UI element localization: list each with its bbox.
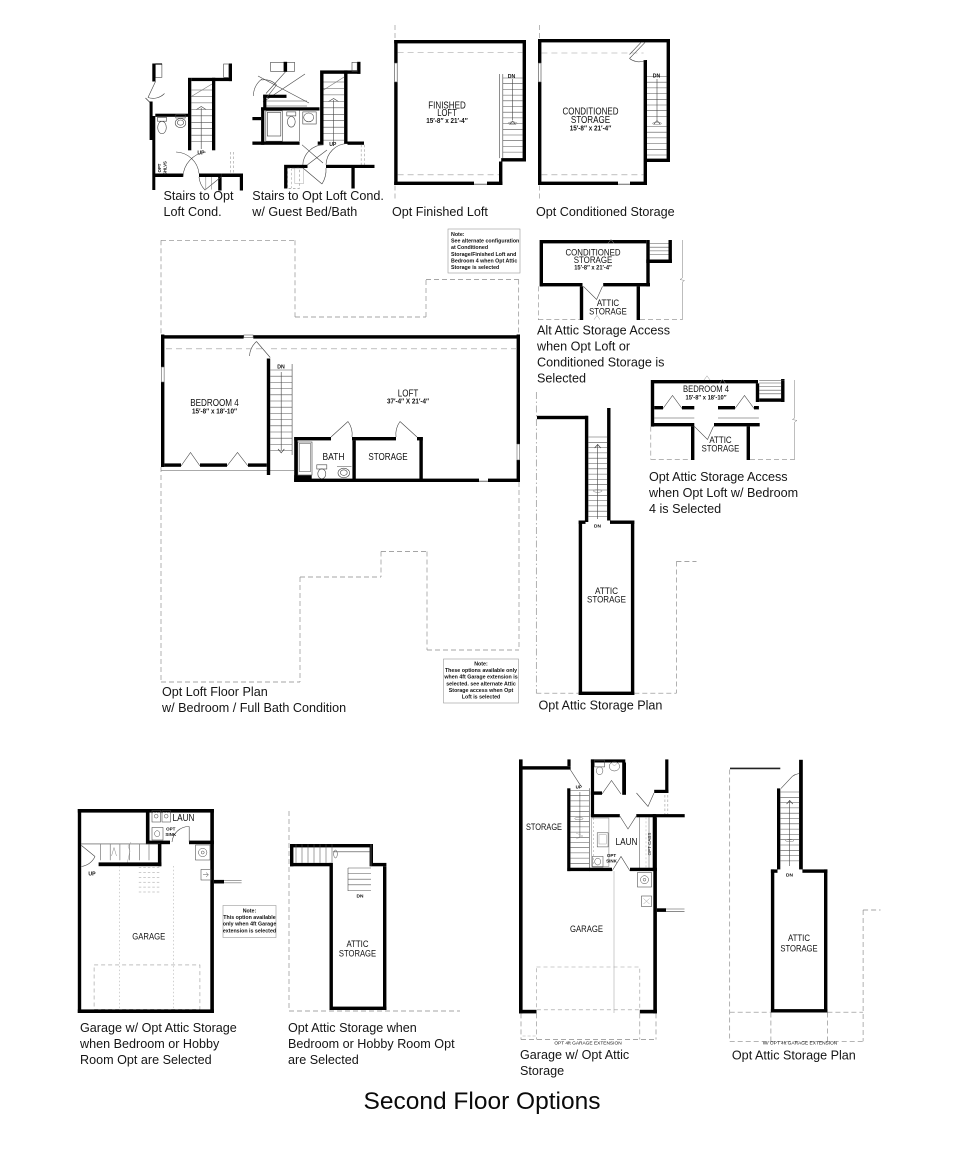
svg-text:STORAGE: STORAGE	[339, 949, 376, 959]
svg-text:UP: UP	[197, 151, 205, 157]
svg-text:15′-8″ x 18′-10″: 15′-8″ x 18′-10″	[192, 407, 237, 416]
svg-text:GARAGE: GARAGE	[132, 930, 165, 941]
svg-text:selected. see alternate Attic: selected. see alternate Attic	[446, 681, 516, 687]
svg-text:w/ Guest Bed/Bath: w/ Guest Bed/Bath	[251, 205, 357, 219]
svg-text:Storage: Storage	[520, 1064, 564, 1078]
svg-text:SHLVS: SHLVS	[163, 161, 168, 175]
svg-text:DN: DN	[594, 524, 601, 530]
svg-text:Stairs to Opt Loft Cond.: Stairs to Opt Loft Cond.	[252, 189, 384, 203]
svg-text:Opt Attic Storage Access: Opt Attic Storage Access	[649, 470, 788, 484]
svg-text:OPT: OPT	[607, 853, 617, 858]
svg-text:Bedroom or Hobby Room Opt: Bedroom or Hobby Room Opt	[288, 1037, 455, 1051]
svg-text:15′-8″ x 21′-4″: 15′-8″ x 21′-4″	[574, 265, 612, 272]
svg-text:DN: DN	[786, 873, 793, 879]
svg-text:Alt Attic Storage Access: Alt Attic Storage Access	[537, 324, 670, 338]
svg-text:SINK: SINK	[165, 832, 177, 837]
svg-text:Bedroom 4 when Opt Attic: Bedroom 4 when Opt Attic	[451, 258, 517, 264]
svg-text:extension is selected: extension is selected	[223, 928, 276, 934]
svg-text:This option available: This option available	[223, 915, 275, 921]
svg-text:Note:: Note:	[243, 909, 257, 915]
svg-text:GARAGE: GARAGE	[570, 923, 603, 934]
svg-text:Storage access when Opt: Storage access when Opt	[449, 688, 514, 694]
svg-text:See alternate configuration: See alternate configuration	[451, 239, 519, 245]
svg-text:STORAGE: STORAGE	[589, 306, 627, 317]
svg-text:OPT: OPT	[157, 163, 162, 172]
svg-text:Opt Loft Floor Plan: Opt Loft Floor Plan	[162, 685, 268, 699]
svg-text:when Opt Loft w/ Bedroom: when Opt Loft w/ Bedroom	[648, 486, 798, 500]
svg-text:STORAGE: STORAGE	[368, 452, 408, 463]
svg-text:15′-8″ x 21′-4″: 15′-8″ x 21′-4″	[426, 116, 468, 125]
svg-text:Opt Conditioned Storage: Opt Conditioned Storage	[536, 205, 675, 219]
svg-text:when Bedroom or Hobby: when Bedroom or Hobby	[79, 1037, 220, 1051]
svg-text:LAUN: LAUN	[616, 837, 638, 848]
svg-text:DN: DN	[277, 365, 285, 371]
svg-text:37′-4″ X 21′-4″: 37′-4″ X 21′-4″	[387, 397, 429, 406]
svg-text:STORAGE: STORAGE	[587, 595, 626, 606]
svg-text:OPT 4ft GARAGE EXTENSION: OPT 4ft GARAGE EXTENSION	[554, 1041, 622, 1047]
svg-text:Loft Cond.: Loft Cond.	[164, 205, 222, 219]
svg-text:LAUN: LAUN	[173, 813, 195, 824]
svg-text:STORAGE: STORAGE	[526, 822, 562, 832]
svg-text:STORAGE: STORAGE	[780, 944, 817, 954]
svg-text:Note:: Note:	[474, 662, 488, 668]
svg-text:15′-8″ x 18′-10″: 15′-8″ x 18′-10″	[686, 395, 728, 402]
svg-text:Opt Attic Storage when: Opt Attic Storage when	[288, 1021, 417, 1035]
svg-text:Selected: Selected	[537, 372, 586, 386]
svg-text:OPT: OPT	[166, 826, 176, 831]
svg-text:OPT CABS: OPT CABS	[647, 833, 652, 856]
svg-text:DN: DN	[508, 74, 516, 80]
svg-text:15′-8″ x 21′-4″: 15′-8″ x 21′-4″	[570, 124, 612, 133]
svg-text:Storage is selected: Storage is selected	[451, 265, 499, 271]
svg-text:DN: DN	[357, 894, 364, 900]
svg-text:Second Floor Options: Second Floor Options	[364, 1088, 601, 1115]
svg-text:Room Opt are Selected: Room Opt are Selected	[80, 1053, 212, 1067]
svg-text:ATTIC: ATTIC	[347, 939, 369, 949]
svg-text:UP: UP	[88, 872, 96, 878]
svg-text:STORAGE: STORAGE	[702, 443, 740, 454]
svg-text:Note:: Note:	[451, 232, 465, 238]
svg-text:Opt Attic Storage Plan: Opt Attic Storage Plan	[539, 699, 663, 713]
svg-text:DN: DN	[653, 74, 661, 80]
svg-text:UP: UP	[576, 785, 582, 790]
svg-text:SINK: SINK	[606, 858, 618, 863]
svg-text:Garage w/ Opt Attic: Garage w/ Opt Attic	[520, 1048, 629, 1062]
svg-text:ATTIC: ATTIC	[788, 933, 810, 943]
svg-text:BEDROOM 4: BEDROOM 4	[683, 384, 729, 394]
svg-text:Conditioned Storage is: Conditioned Storage is	[537, 356, 664, 370]
svg-text:are Selected: are Selected	[288, 1053, 359, 1067]
svg-text:Garage w/ Opt Attic Storage: Garage w/ Opt Attic Storage	[80, 1021, 237, 1035]
svg-text:Storage/Finished Loft and: Storage/Finished Loft and	[451, 252, 516, 258]
svg-text:only when 4ft Garage: only when 4ft Garage	[223, 922, 277, 928]
svg-text:Opt Finished Loft: Opt Finished Loft	[392, 205, 488, 219]
svg-text:These options available only: These options available only	[445, 668, 517, 674]
svg-text:Opt Attic Storage Plan: Opt Attic Storage Plan	[732, 1049, 856, 1063]
svg-text:at Conditioned: at Conditioned	[451, 245, 488, 251]
svg-text:when 4ft Garage extension is: when 4ft Garage extension is	[443, 675, 517, 681]
svg-text:BATH: BATH	[323, 452, 345, 463]
svg-text:when Opt Loft or: when Opt Loft or	[536, 340, 630, 354]
svg-text:Stairs to Opt: Stairs to Opt	[164, 189, 234, 203]
svg-text:W/ OPT 4ft GARAGE EXTENSION: W/ OPT 4ft GARAGE EXTENSION	[763, 1041, 838, 1047]
svg-text:w/ Bedroom / Full Bath Conditi: w/ Bedroom / Full Bath Condition	[161, 701, 346, 715]
svg-text:4 is Selected: 4 is Selected	[649, 502, 721, 516]
svg-text:Loft is selected: Loft is selected	[462, 695, 501, 701]
